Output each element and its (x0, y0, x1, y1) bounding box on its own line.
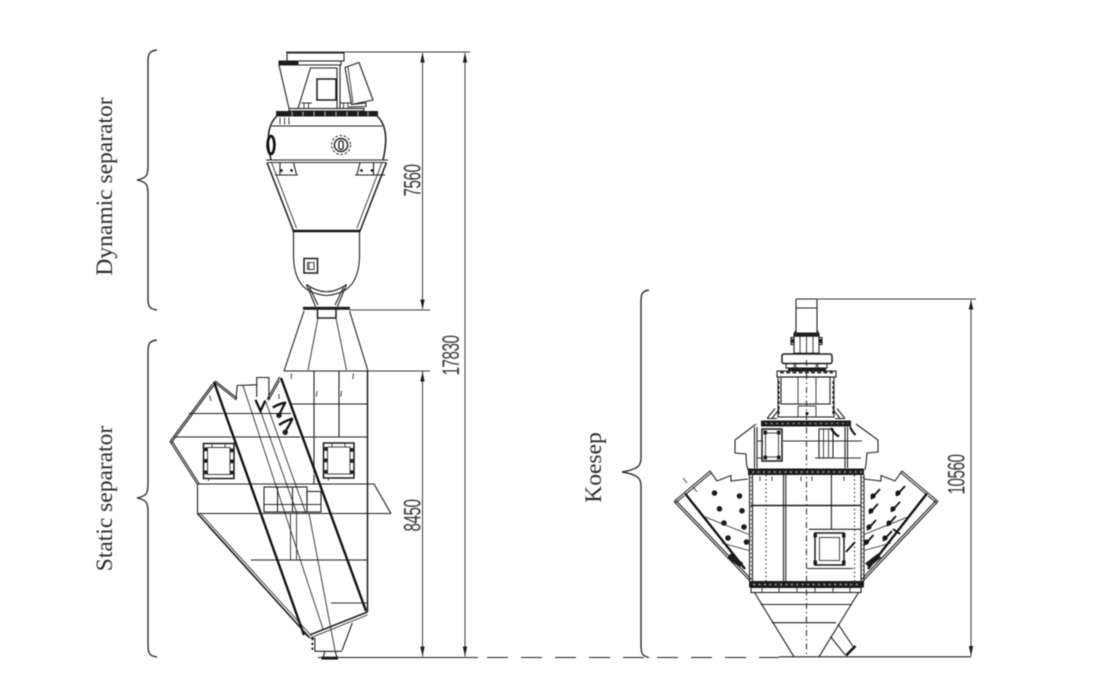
svg-text:Dynamic separator: Dynamic separator (92, 97, 118, 275)
svg-text:7560: 7560 (400, 164, 426, 196)
svg-text:8450: 8450 (400, 499, 426, 531)
svg-text:Koesep: Koesep (581, 432, 607, 502)
svg-text:Static separator: Static separator (92, 426, 118, 572)
svg-text:17830: 17830 (439, 335, 465, 375)
svg-text:10560: 10560 (944, 454, 970, 494)
